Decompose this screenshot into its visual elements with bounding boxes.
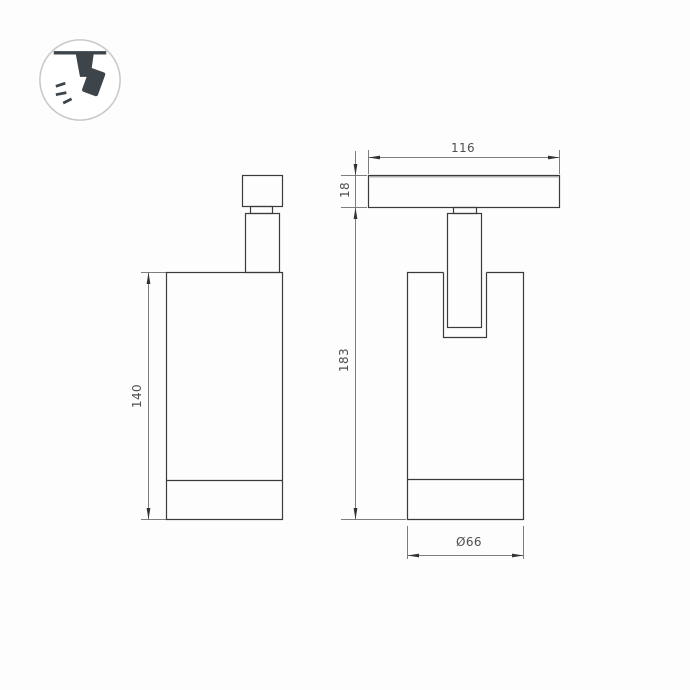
side-stem xyxy=(246,214,280,273)
dim-label-side-height: 140 xyxy=(130,384,144,408)
front-track-bar xyxy=(369,176,560,208)
dimension-labels: 116 18 183 140 Ø66 xyxy=(130,141,482,549)
arrow-116-left xyxy=(369,156,381,160)
side-lamp-body xyxy=(167,273,283,520)
arrow-66-right xyxy=(512,554,524,558)
front-lamp-body xyxy=(408,273,524,520)
dim-label-diameter: Ø66 xyxy=(456,535,482,549)
arrow-18-down xyxy=(354,164,358,176)
dim-label-track-width: 116 xyxy=(451,141,475,155)
arrow-140-down xyxy=(147,508,151,520)
arrow-66-left xyxy=(408,554,420,558)
side-pivot-neck xyxy=(251,207,273,214)
drawing: 116 18 183 140 Ø66 xyxy=(0,0,690,690)
side-track-adapter xyxy=(243,176,283,207)
front-stem xyxy=(448,214,482,328)
arrow-116-right xyxy=(548,156,560,160)
arrow-18-183-up xyxy=(354,208,358,220)
arrow-140-up xyxy=(147,273,151,285)
front-view xyxy=(369,176,560,520)
side-view xyxy=(167,176,283,520)
dim-label-track-height: 18 xyxy=(338,182,352,198)
technical-drawing-canvas: 116 18 183 140 Ø66 xyxy=(0,0,690,690)
arrow-183-down xyxy=(354,508,358,520)
dimension-arrows xyxy=(147,156,560,558)
dim-label-total-height: 183 xyxy=(337,348,351,372)
front-pivot-neck xyxy=(454,208,477,214)
